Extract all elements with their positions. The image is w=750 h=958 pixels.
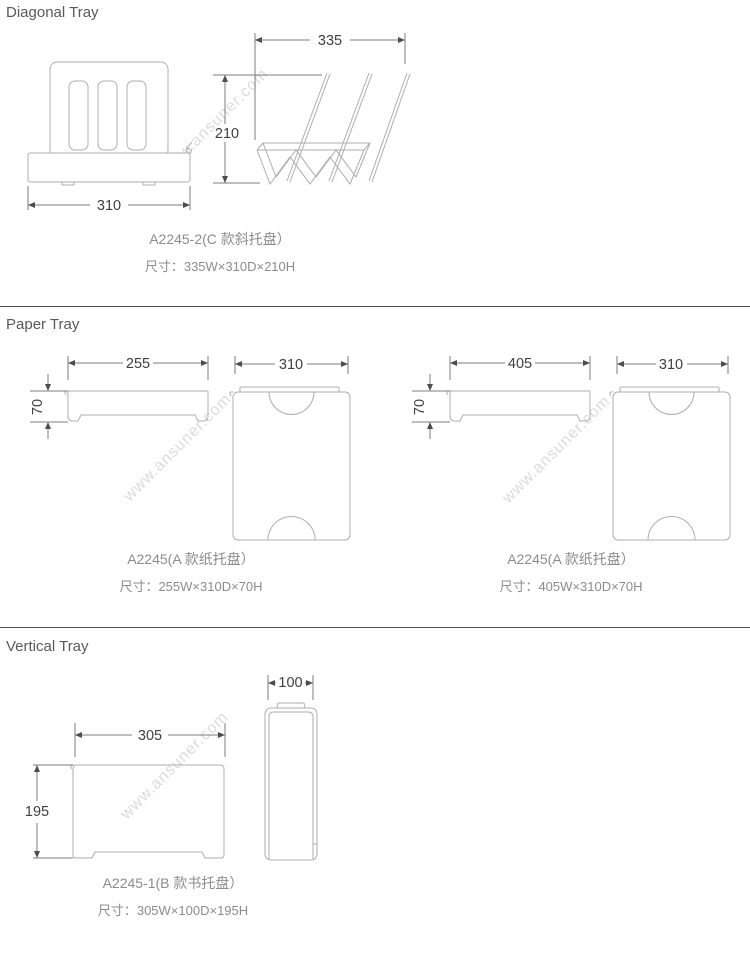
- vertical-tray-side-drawing: 305 195: [20, 720, 235, 870]
- size-spec: 尺寸：305W×100D×195H: [48, 900, 298, 919]
- vertical-tray-front-drawing: 100: [255, 668, 330, 868]
- model-code: A2245(A 款纸托盘）: [66, 549, 316, 569]
- paper-tray-right-side-drawing: 405 70: [407, 350, 597, 450]
- dimension-label: 210: [215, 126, 239, 142]
- dimension-label: 70: [412, 399, 428, 415]
- width-dimension: 310: [28, 186, 190, 214]
- dimension-label: 310: [659, 357, 683, 373]
- width-dimension: 310: [617, 356, 728, 374]
- model-code: A2245-1(B 款书托盘）: [48, 873, 298, 893]
- model-code: A2245(A 款纸托盘）: [446, 549, 696, 569]
- section-heading-vertical-tray: Vertical Tray: [6, 638, 89, 655]
- product-label-diagonal: A2245-2(C 款斜托盘） 尺寸：335W×310D×210H: [95, 229, 345, 275]
- tray-outline: [257, 143, 370, 184]
- corner-mark: [610, 392, 613, 396]
- dimension-label: 335: [318, 33, 342, 49]
- diagonal-tray-front-drawing: 310: [18, 55, 208, 220]
- tray-outline: [65, 391, 208, 421]
- dimension-label: 195: [25, 804, 49, 820]
- section-divider: [0, 627, 750, 628]
- wire-rods: [287, 73, 410, 182]
- tray-outline: [71, 765, 224, 858]
- product-label-paper-right: A2245(A 款纸托盘） 尺寸：405W×310D×70H: [446, 549, 696, 595]
- width-dimension: 310: [235, 356, 348, 374]
- product-spec-sheet: www.ansuner.com www.ansuner.com www.ansu…: [0, 0, 750, 958]
- paper-tray-left-top-drawing: 310: [228, 352, 356, 544]
- dimension-label: 305: [138, 728, 162, 744]
- tray-outline: [28, 62, 192, 185]
- height-dimension: 70: [30, 374, 68, 439]
- width-dimension: 305: [75, 723, 225, 757]
- dimension-label: 255: [126, 356, 150, 372]
- width-dimension: 405: [450, 356, 590, 380]
- product-label-vertical: A2245-1(B 款书托盘） 尺寸：305W×100D×195H: [48, 873, 298, 919]
- height-dimension: 210: [213, 75, 322, 183]
- section-heading-paper-tray: Paper Tray: [6, 316, 79, 333]
- size-spec: 尺寸：405W×310D×70H: [446, 576, 696, 595]
- tray-outline: [265, 703, 317, 860]
- paper-tray-right-top-drawing: 310: [608, 352, 736, 544]
- width-dimension: 100: [268, 675, 313, 700]
- size-spec: 尺寸：335W×310D×210H: [95, 256, 345, 275]
- corner-mark: [230, 392, 233, 396]
- tray-outline: [447, 391, 590, 421]
- height-dimension: 195: [25, 765, 73, 858]
- width-dimension: 255: [68, 356, 208, 380]
- dimension-label: 405: [508, 356, 532, 372]
- diagonal-tray-side-drawing: 335 210: [210, 28, 425, 203]
- dimension-label: 310: [97, 198, 121, 214]
- tray-outline: [610, 387, 730, 540]
- height-dimension: 70: [412, 374, 450, 439]
- paper-tray-left-side-drawing: 255 70: [25, 350, 215, 450]
- dimension-label: 70: [30, 399, 46, 415]
- width-dimension: 335: [255, 33, 405, 140]
- size-spec: 尺寸：255W×310D×70H: [66, 576, 316, 595]
- dimension-label: 310: [279, 357, 303, 373]
- tray-outline: [230, 387, 350, 540]
- dimension-label: 100: [278, 675, 302, 691]
- product-label-paper-left: A2245(A 款纸托盘） 尺寸：255W×310D×70H: [66, 549, 316, 595]
- section-divider: [0, 306, 750, 307]
- section-heading-diagonal-tray: Diagonal Tray: [6, 4, 99, 21]
- model-code: A2245-2(C 款斜托盘）: [95, 229, 345, 249]
